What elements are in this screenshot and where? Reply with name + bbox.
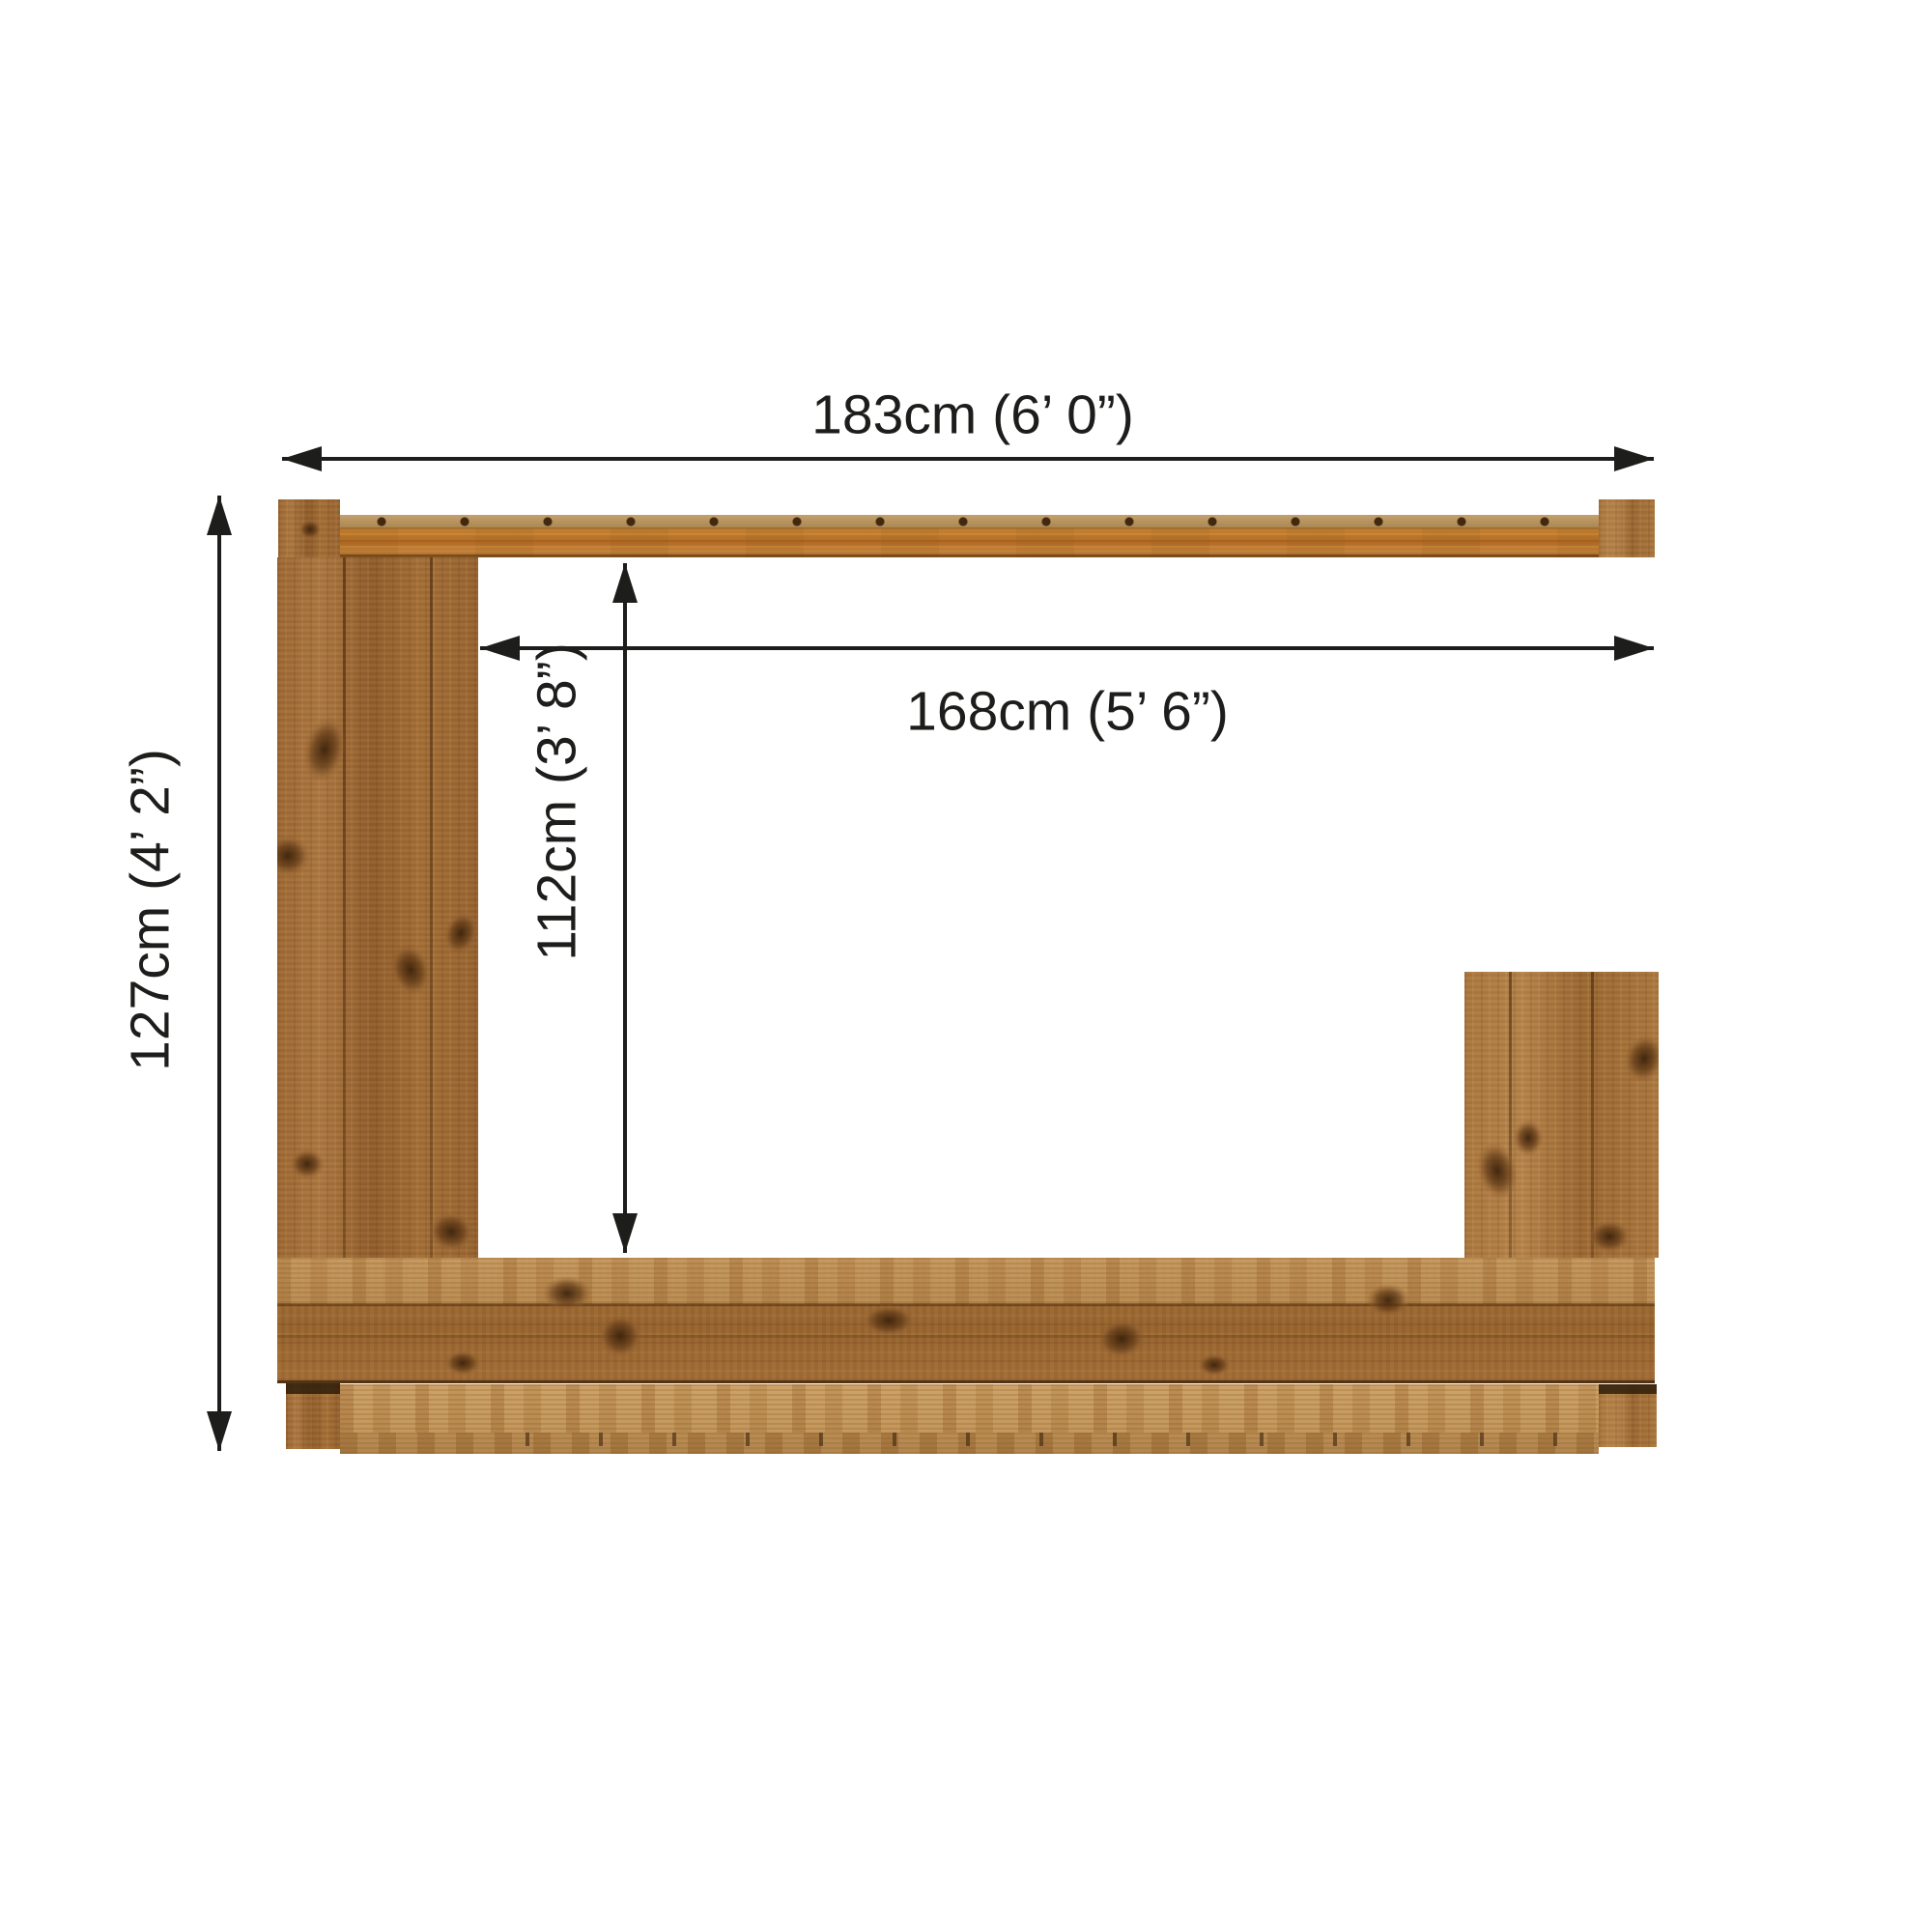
dim-arrowhead-up <box>207 496 232 535</box>
dimension-label-total-width: 183cm (6’ 0”) <box>811 385 1134 446</box>
top-beam <box>340 515 1599 557</box>
base-rail-lower <box>340 1433 1599 1454</box>
wood-knot <box>376 930 444 1010</box>
dimension-label-hatch-width: 168cm (5’ 6”) <box>906 682 1229 743</box>
wood-knot <box>296 517 325 542</box>
right-side-panel <box>1464 972 1659 1258</box>
wood-knot <box>1088 1310 1156 1368</box>
shadow-gap <box>286 1383 340 1394</box>
left-side-panel <box>277 557 478 1258</box>
product-dimension-diagram: 183cm (6’ 0”) 168cm (5’ 6”) 127cm (4’ 2”… <box>0 0 1932 1932</box>
top-beam-fixing-strip <box>340 515 1599 528</box>
dim-arrowhead-right <box>1614 636 1654 661</box>
wood-knot <box>431 899 478 967</box>
plank-seam <box>1509 972 1512 1258</box>
wood-knot <box>419 1203 478 1258</box>
counter-top-rail <box>277 1258 1655 1304</box>
base-right-foot <box>1599 1384 1657 1447</box>
plank-seam <box>277 1303 1655 1306</box>
wood-knot <box>440 1347 486 1379</box>
wood-knot <box>1611 1022 1659 1095</box>
plank-end-marks <box>456 1433 1560 1446</box>
dim-line-total-width <box>282 457 1654 461</box>
dim-arrowhead-left <box>282 446 322 471</box>
wood-knot <box>277 830 316 882</box>
wood-knot <box>536 1271 598 1316</box>
wood-knot <box>1193 1350 1236 1379</box>
dimension-label-total-height: 127cm (4’ 2”) <box>121 749 182 1071</box>
wood-knot <box>1509 1115 1548 1161</box>
dim-arrowhead-left <box>480 636 520 661</box>
wood-knot <box>855 1300 923 1341</box>
bottom-front-panel <box>277 1258 1655 1383</box>
base-left-foot <box>286 1383 340 1449</box>
dim-arrowhead-up <box>612 563 638 603</box>
base-rail <box>340 1384 1599 1433</box>
wood-knot <box>285 1145 329 1183</box>
wood-knot <box>290 702 358 796</box>
wood-knot <box>1361 1279 1415 1321</box>
plank-seam <box>343 557 346 1258</box>
plank-seam <box>1591 972 1594 1258</box>
dim-line-total-height <box>217 496 221 1451</box>
dim-arrowhead-right <box>1614 446 1654 471</box>
plank-seam <box>277 1335 1655 1338</box>
top-beam-left-cap <box>278 499 340 557</box>
dimension-label-hatch-height: 112cm (3’ 8”) <box>527 642 588 960</box>
dim-arrowhead-down <box>207 1411 232 1451</box>
wood-knot <box>1582 1215 1636 1258</box>
shadow-gap <box>1599 1384 1657 1394</box>
top-beam-right-cap <box>1599 499 1655 557</box>
plank-seam <box>430 557 433 1258</box>
dim-line-hatch-height <box>623 563 627 1253</box>
dim-line-hatch-width <box>480 646 1654 650</box>
dim-arrowhead-down <box>612 1213 638 1253</box>
wood-knot <box>587 1303 652 1368</box>
